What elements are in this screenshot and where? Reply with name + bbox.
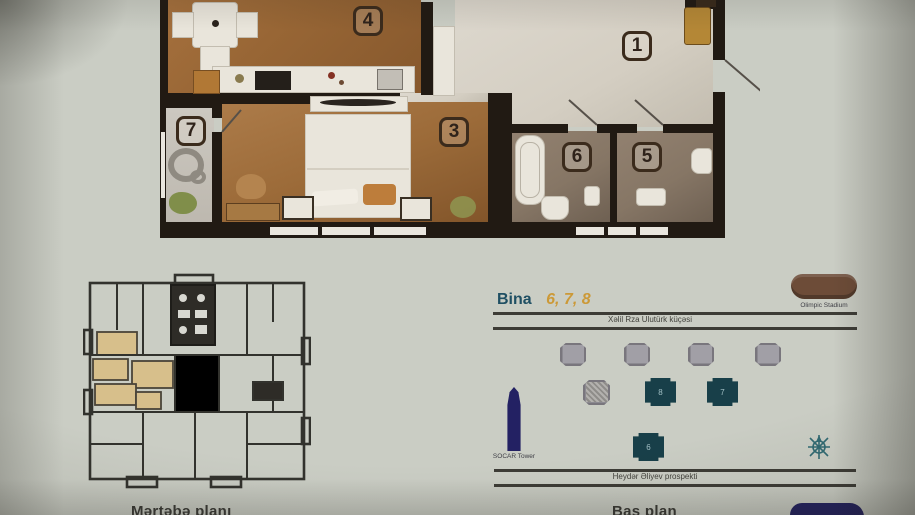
nightstand <box>282 196 314 220</box>
toilet <box>691 148 712 174</box>
wall <box>421 2 433 95</box>
dining-chair <box>236 12 258 38</box>
neighbor-building <box>755 343 781 366</box>
road-line <box>494 484 856 487</box>
building-number: 6 <box>646 443 650 452</box>
table-decor <box>212 20 219 27</box>
cooktop <box>255 71 291 90</box>
room-number: 4 <box>363 10 374 32</box>
hallway-bench <box>684 7 711 45</box>
project-building-8: 8 <box>645 378 676 406</box>
neighbor-building <box>624 343 650 366</box>
window <box>576 227 604 235</box>
scene: 4 1 3 7 6 5 <box>0 0 915 515</box>
building-under-construction <box>583 380 610 405</box>
olympic-stadium-icon <box>791 274 857 299</box>
neighbor-building <box>688 343 714 366</box>
wall <box>713 0 725 60</box>
wall <box>597 124 637 133</box>
wall <box>610 131 617 223</box>
counter-decor <box>328 72 335 79</box>
apartment-floor-plan: 4 1 3 7 6 5 <box>160 0 760 246</box>
title-building-numbers: 6, 7, 8 <box>546 291 590 308</box>
soundbar <box>320 99 396 106</box>
window <box>640 227 668 235</box>
window <box>270 227 318 235</box>
balcony-chair <box>190 170 206 184</box>
room-badge-3: 3 <box>439 117 469 147</box>
dresser <box>226 203 280 221</box>
balcony-plant <box>169 192 197 214</box>
wall <box>160 0 168 102</box>
room-number: 6 <box>572 146 583 168</box>
wall <box>713 92 725 226</box>
project-building-6: 6 <box>633 433 664 461</box>
road-line <box>493 327 857 330</box>
room-number: 5 <box>642 146 653 168</box>
room-badge-5: 5 <box>632 142 662 172</box>
room-badge-7: 7 <box>176 116 206 146</box>
floor-plate-caption: Mərtəbə planı <box>131 503 232 515</box>
title-prefix: Bina <box>497 291 532 308</box>
fridge-cabinet <box>433 26 455 96</box>
room-badge-6: 6 <box>562 142 592 172</box>
floor-plate-plan <box>83 272 311 490</box>
toilet <box>541 196 569 220</box>
neighbor-building <box>560 343 586 366</box>
sink <box>636 188 666 206</box>
wall <box>512 124 568 133</box>
kitchen-cabinet <box>193 70 220 94</box>
bed-pillow <box>363 184 396 205</box>
armchair <box>236 174 266 199</box>
building-number: 8 <box>658 388 662 397</box>
street-name-bottom: Heydər Əliyev prospekti <box>520 472 790 481</box>
bed-pillow <box>312 188 359 206</box>
plant <box>450 196 476 218</box>
dining-chair <box>172 12 194 38</box>
site-plan-caption: Baş plan <box>612 503 677 515</box>
hallway-decor <box>696 0 716 7</box>
olympic-stadium-label: Olimpic Stadium <box>789 302 859 309</box>
sink <box>584 186 600 206</box>
window <box>374 227 426 235</box>
room-badge-1: 1 <box>622 31 652 61</box>
street-name-top: Xəlil Rza Ulutürk küçəsi <box>520 315 780 324</box>
wall <box>663 124 715 133</box>
room-number: 3 <box>449 121 460 143</box>
duvet-fold <box>307 168 409 170</box>
building-number: 7 <box>720 388 724 397</box>
wall <box>212 132 222 232</box>
project-building-7: 7 <box>707 378 738 406</box>
bathtub-inner <box>520 142 540 198</box>
balcony-window <box>161 132 165 198</box>
window <box>608 227 636 235</box>
room-number: 1 <box>632 35 643 57</box>
wall <box>488 93 512 226</box>
wall <box>212 108 222 118</box>
site-plan-title: Bina 6, 7, 8 <box>497 291 591 309</box>
room-number: 7 <box>186 120 197 142</box>
room-bath5-floor <box>617 131 713 223</box>
brochure-photo: 4 1 3 7 6 5 <box>0 0 915 515</box>
landmark-partial <box>790 503 864 515</box>
socar-tower-label: SOCAR Tower <box>486 453 542 460</box>
counter-decor <box>339 80 344 85</box>
counter-plant <box>235 74 244 83</box>
compass-icon <box>806 433 832 461</box>
socar-tower-icon <box>503 387 525 451</box>
window <box>322 227 370 235</box>
room-badge-4: 4 <box>353 6 383 36</box>
kitchen-sink <box>377 69 403 90</box>
nightstand <box>400 197 432 221</box>
